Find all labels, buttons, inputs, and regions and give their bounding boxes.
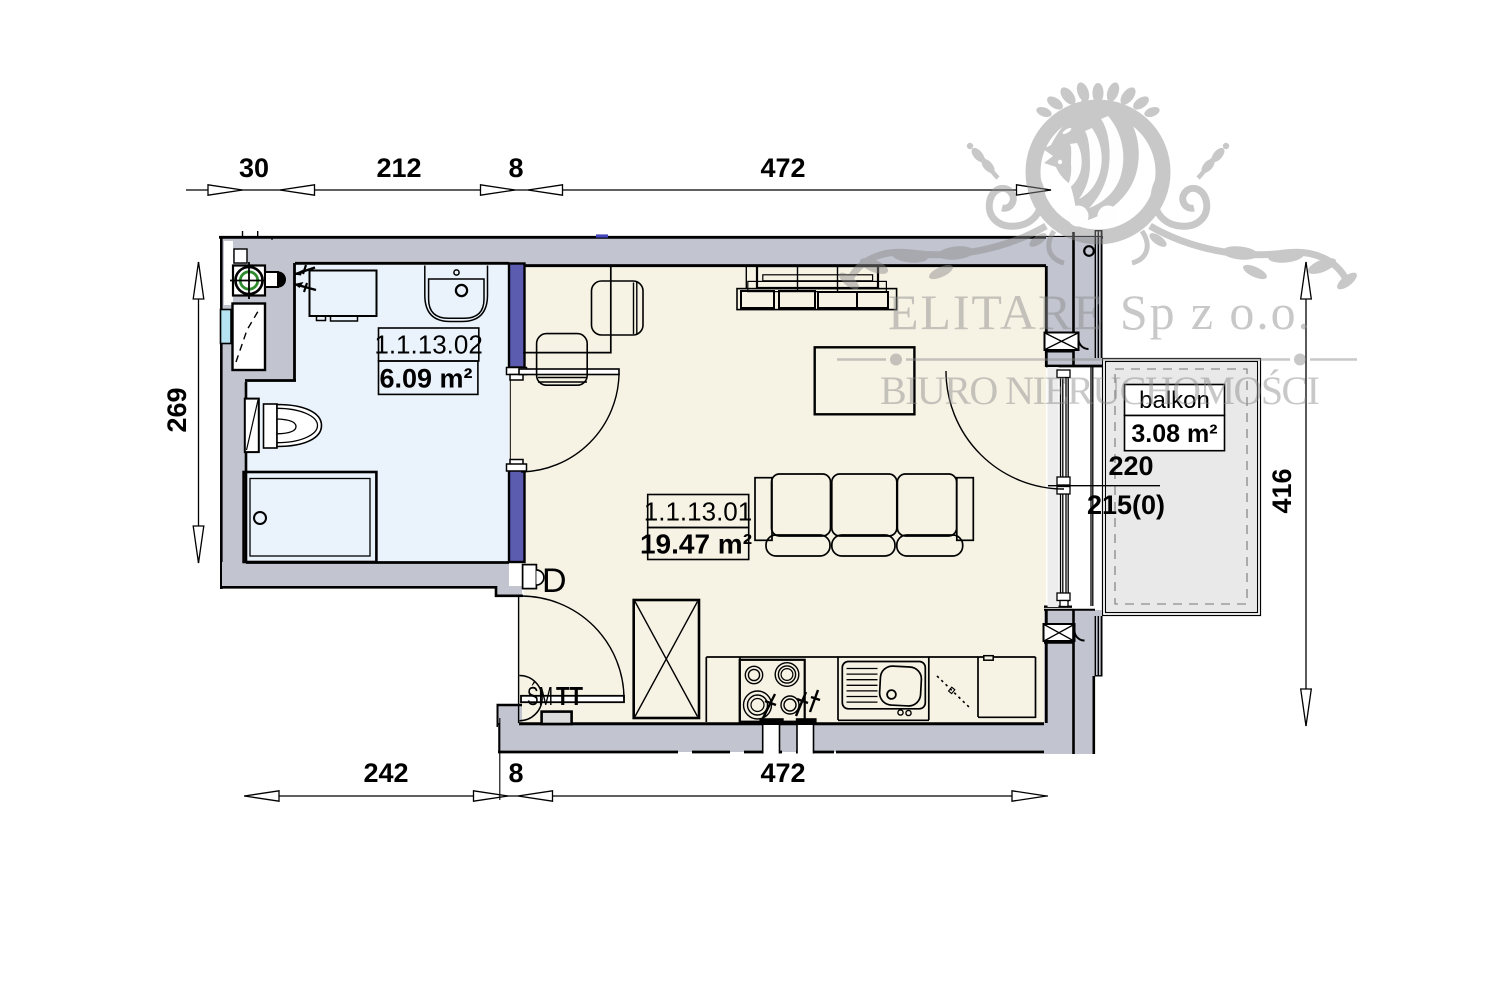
svg-text:ŚM: ŚM xyxy=(527,681,553,711)
svg-text:416: 416 xyxy=(1267,468,1297,513)
svg-text:472: 472 xyxy=(760,153,805,183)
svg-text:8: 8 xyxy=(508,758,523,788)
svg-text:1.1.13.01: 1.1.13.01 xyxy=(644,497,752,527)
svg-text:D: D xyxy=(542,562,567,600)
svg-text:472: 472 xyxy=(760,758,805,788)
svg-text:30: 30 xyxy=(239,153,269,183)
svg-text:3.08 m²: 3.08 m² xyxy=(1131,420,1217,448)
svg-text:212: 212 xyxy=(376,153,421,183)
svg-text:8: 8 xyxy=(508,153,523,183)
svg-text:BIURO NIERUCHOMOŚCI: BIURO NIERUCHOMOŚCI xyxy=(880,368,1320,413)
svg-text:TT: TT xyxy=(556,681,583,711)
svg-text:220: 220 xyxy=(1108,451,1153,481)
svg-text:215(0): 215(0) xyxy=(1087,490,1165,520)
svg-text:269: 269 xyxy=(162,387,192,432)
svg-text:242: 242 xyxy=(363,758,408,788)
svg-text:19.47 m²: 19.47 m² xyxy=(640,529,752,560)
svg-text:6.09 m²: 6.09 m² xyxy=(379,364,472,394)
svg-text:1.1.13.02: 1.1.13.02 xyxy=(374,330,482,360)
